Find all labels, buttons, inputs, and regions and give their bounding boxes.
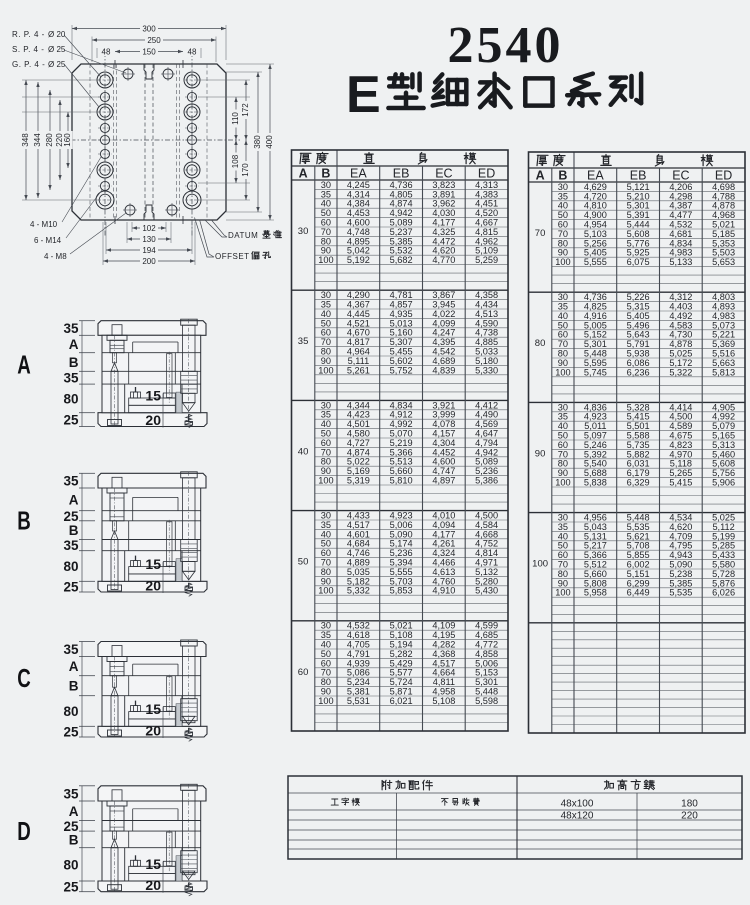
svg-text:108: 108: [231, 154, 240, 168]
svg-text:400: 400: [265, 135, 274, 149]
svg-text:40: 40: [298, 446, 309, 457]
svg-text:5,108: 5,108: [432, 696, 455, 706]
svg-text:130: 130: [142, 235, 156, 244]
svg-text:80: 80: [63, 559, 78, 574]
svg-text:Ø 25: Ø 25: [48, 60, 66, 69]
svg-text:6,329: 6,329: [627, 478, 650, 488]
svg-text:6,075: 6,075: [627, 257, 650, 267]
svg-text:80: 80: [535, 338, 546, 349]
svg-text:5,853: 5,853: [390, 586, 413, 596]
svg-text:20: 20: [145, 723, 161, 739]
svg-text:4,770: 4,770: [432, 255, 455, 265]
svg-text:DATUM: DATUM: [228, 231, 258, 240]
svg-text:170: 170: [241, 163, 250, 177]
svg-text:172: 172: [241, 103, 250, 117]
svg-text:15: 15: [145, 388, 161, 404]
svg-text:5,906: 5,906: [712, 478, 735, 488]
svg-text:EB: EB: [630, 169, 647, 183]
svg-text:5,810: 5,810: [390, 476, 413, 486]
svg-text:B: B: [69, 355, 79, 370]
svg-text:48: 48: [102, 47, 111, 56]
svg-text:25: 25: [63, 725, 79, 740]
svg-text:B: B: [321, 167, 330, 181]
svg-text:100: 100: [318, 696, 333, 706]
svg-text:70: 70: [535, 228, 546, 239]
svg-text:B: B: [69, 523, 79, 538]
svg-text:S. P. 4 -: S. P. 4 -: [12, 45, 44, 54]
svg-text:EA: EA: [350, 167, 367, 181]
svg-text:A: A: [69, 804, 79, 819]
svg-text:100: 100: [318, 255, 333, 265]
svg-text:20: 20: [145, 877, 161, 893]
svg-text:5,752: 5,752: [390, 365, 413, 375]
svg-text:5,745: 5,745: [584, 367, 607, 377]
svg-text:6,021: 6,021: [390, 696, 413, 706]
svg-text:4,910: 4,910: [432, 586, 455, 596]
svg-text:B: B: [69, 832, 79, 847]
svg-text:380: 380: [253, 135, 262, 149]
svg-text:20: 20: [145, 578, 161, 594]
svg-text:160: 160: [63, 133, 72, 147]
svg-text:100: 100: [318, 365, 333, 375]
svg-text:80: 80: [63, 857, 78, 872]
svg-text:Ø 25: Ø 25: [48, 45, 66, 54]
svg-text:4 - M10: 4 - M10: [30, 220, 58, 229]
svg-text:100: 100: [318, 476, 333, 486]
svg-text:EC: EC: [435, 167, 452, 181]
svg-text:15: 15: [145, 701, 161, 717]
svg-text:100: 100: [555, 257, 570, 267]
svg-text:30: 30: [298, 226, 309, 237]
svg-text:280: 280: [45, 133, 54, 147]
svg-text:344: 344: [33, 133, 42, 147]
svg-text:5,259: 5,259: [475, 255, 498, 265]
svg-text:4 - M8: 4 - M8: [44, 252, 67, 261]
svg-text:OFFSET: OFFSET: [215, 252, 250, 261]
svg-text:5,332: 5,332: [347, 586, 370, 596]
svg-text:35: 35: [298, 336, 309, 347]
svg-text:EC: EC: [672, 169, 689, 183]
svg-text:6,449: 6,449: [627, 588, 650, 598]
svg-text:15: 15: [145, 556, 161, 572]
svg-text:5,682: 5,682: [390, 255, 413, 265]
svg-text:100: 100: [532, 559, 548, 570]
svg-text:5,653: 5,653: [712, 257, 735, 267]
svg-text:A: A: [17, 350, 31, 380]
svg-text:5,319: 5,319: [347, 476, 370, 486]
svg-text:5,555: 5,555: [584, 257, 607, 267]
svg-text:110: 110: [231, 112, 240, 125]
svg-text:100: 100: [318, 586, 333, 596]
svg-text:Ø 20: Ø 20: [48, 30, 66, 39]
svg-text:EB: EB: [393, 167, 410, 181]
svg-text:150: 150: [142, 47, 156, 56]
svg-text:B: B: [558, 169, 567, 183]
svg-text:5,531: 5,531: [347, 696, 370, 706]
svg-text:90: 90: [535, 448, 546, 459]
svg-text:4,897: 4,897: [432, 476, 455, 486]
svg-text:20: 20: [145, 412, 161, 428]
svg-text:35: 35: [63, 474, 79, 489]
svg-text:5,813: 5,813: [712, 367, 735, 377]
svg-text:E: E: [346, 66, 381, 124]
svg-text:5,838: 5,838: [584, 478, 607, 488]
svg-text:5,386: 5,386: [475, 476, 498, 486]
svg-text:48: 48: [188, 47, 197, 56]
svg-text:B: B: [69, 679, 79, 694]
svg-text:194: 194: [142, 246, 156, 255]
svg-text:80: 80: [63, 704, 78, 719]
svg-text:180: 180: [681, 799, 698, 810]
svg-text:25: 25: [63, 413, 79, 428]
svg-text:5,415: 5,415: [669, 478, 692, 488]
svg-text:48x100: 48x100: [561, 799, 594, 810]
svg-text:6,026: 6,026: [712, 588, 735, 598]
svg-text:5,598: 5,598: [475, 696, 498, 706]
svg-text:25: 25: [63, 509, 79, 524]
svg-text:A: A: [69, 337, 79, 352]
svg-text:100: 100: [555, 478, 570, 488]
svg-text:35: 35: [63, 786, 79, 801]
svg-text:6 - M14: 6 - M14: [34, 236, 62, 245]
svg-text:348: 348: [21, 133, 30, 147]
svg-text:25: 25: [63, 580, 79, 595]
svg-text:4,839: 4,839: [432, 365, 455, 375]
svg-text:15: 15: [145, 856, 161, 872]
svg-text:35: 35: [63, 321, 79, 336]
svg-text:2540: 2540: [448, 17, 564, 74]
svg-text:ED: ED: [715, 169, 732, 183]
svg-text:5,430: 5,430: [475, 586, 498, 596]
svg-text:G. P. 4 -: G. P. 4 -: [12, 60, 45, 69]
svg-text:100: 100: [555, 588, 570, 598]
svg-text:A: A: [69, 659, 79, 674]
svg-text:D: D: [17, 816, 31, 846]
svg-text:EA: EA: [587, 169, 604, 183]
svg-text:300: 300: [142, 24, 156, 33]
svg-text:A: A: [69, 492, 79, 507]
svg-text:102: 102: [142, 224, 156, 233]
svg-text:50: 50: [298, 557, 309, 568]
svg-text:25: 25: [63, 879, 79, 894]
svg-text:R. P. 4 -: R. P. 4 -: [12, 30, 45, 39]
svg-text:6,236: 6,236: [627, 367, 650, 377]
svg-text:250: 250: [147, 36, 161, 45]
svg-text:ED: ED: [478, 167, 495, 181]
svg-text:5,133: 5,133: [669, 257, 692, 267]
svg-text:100: 100: [555, 367, 570, 377]
svg-text:200: 200: [142, 257, 156, 266]
svg-text:5,322: 5,322: [669, 367, 692, 377]
svg-text:5,330: 5,330: [475, 365, 498, 375]
svg-text:60: 60: [298, 667, 309, 678]
svg-text:35: 35: [63, 642, 79, 657]
svg-text:35: 35: [63, 538, 79, 553]
svg-text:5,535: 5,535: [669, 588, 692, 598]
svg-text:35: 35: [63, 371, 79, 386]
svg-text:5,192: 5,192: [347, 255, 370, 265]
svg-text:C: C: [17, 663, 31, 693]
svg-text:B: B: [17, 506, 31, 536]
svg-text:5,958: 5,958: [584, 588, 607, 598]
svg-text:5,261: 5,261: [347, 365, 370, 375]
svg-text:A: A: [536, 169, 545, 183]
svg-text:80: 80: [63, 391, 78, 406]
svg-text:A: A: [299, 167, 308, 181]
